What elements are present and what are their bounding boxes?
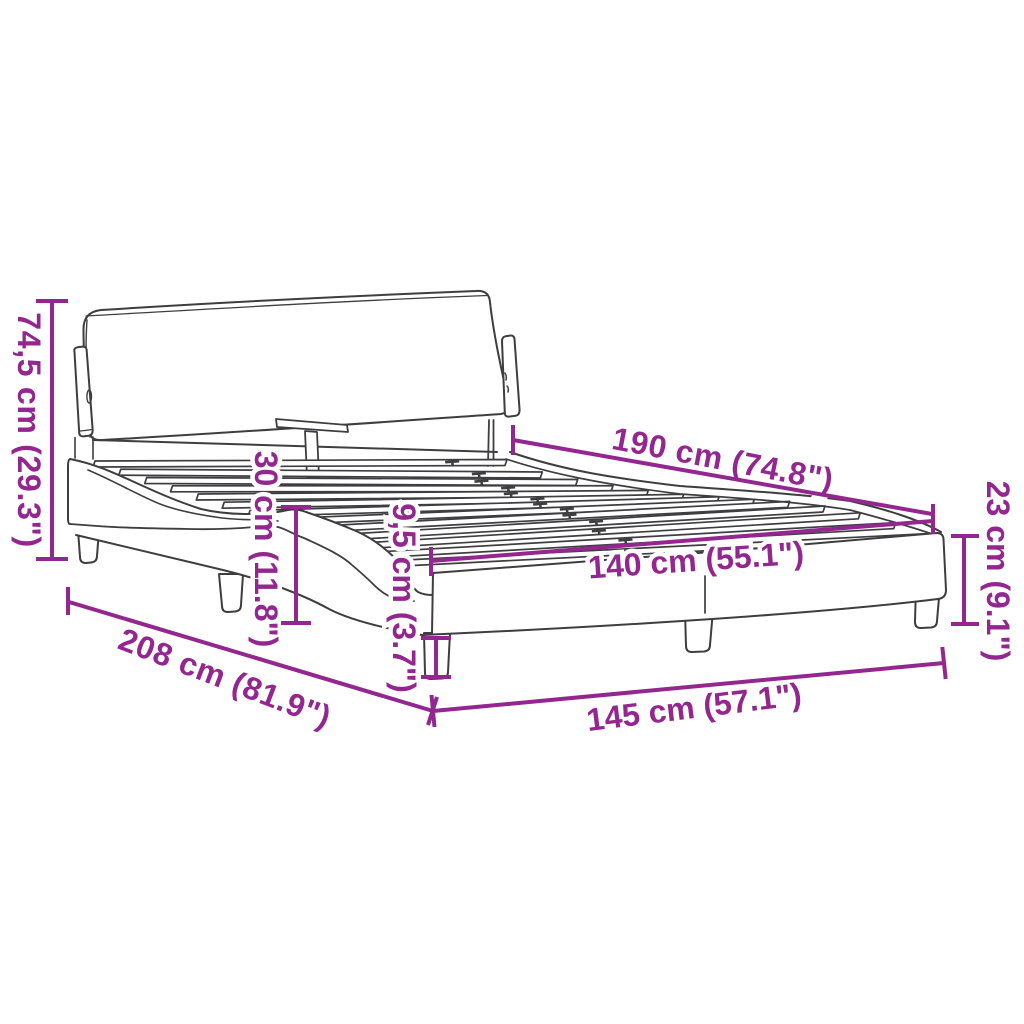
svg-text:9,5 cm (3.7"): 9,5 cm (3.7") [386, 503, 422, 692]
svg-text:74,5 cm (29.3"): 74,5 cm (29.3") [11, 312, 47, 548]
svg-text:23 cm (9.1"): 23 cm (9.1") [980, 481, 1016, 662]
svg-text:30 cm (11.8"): 30 cm (11.8") [248, 451, 284, 648]
